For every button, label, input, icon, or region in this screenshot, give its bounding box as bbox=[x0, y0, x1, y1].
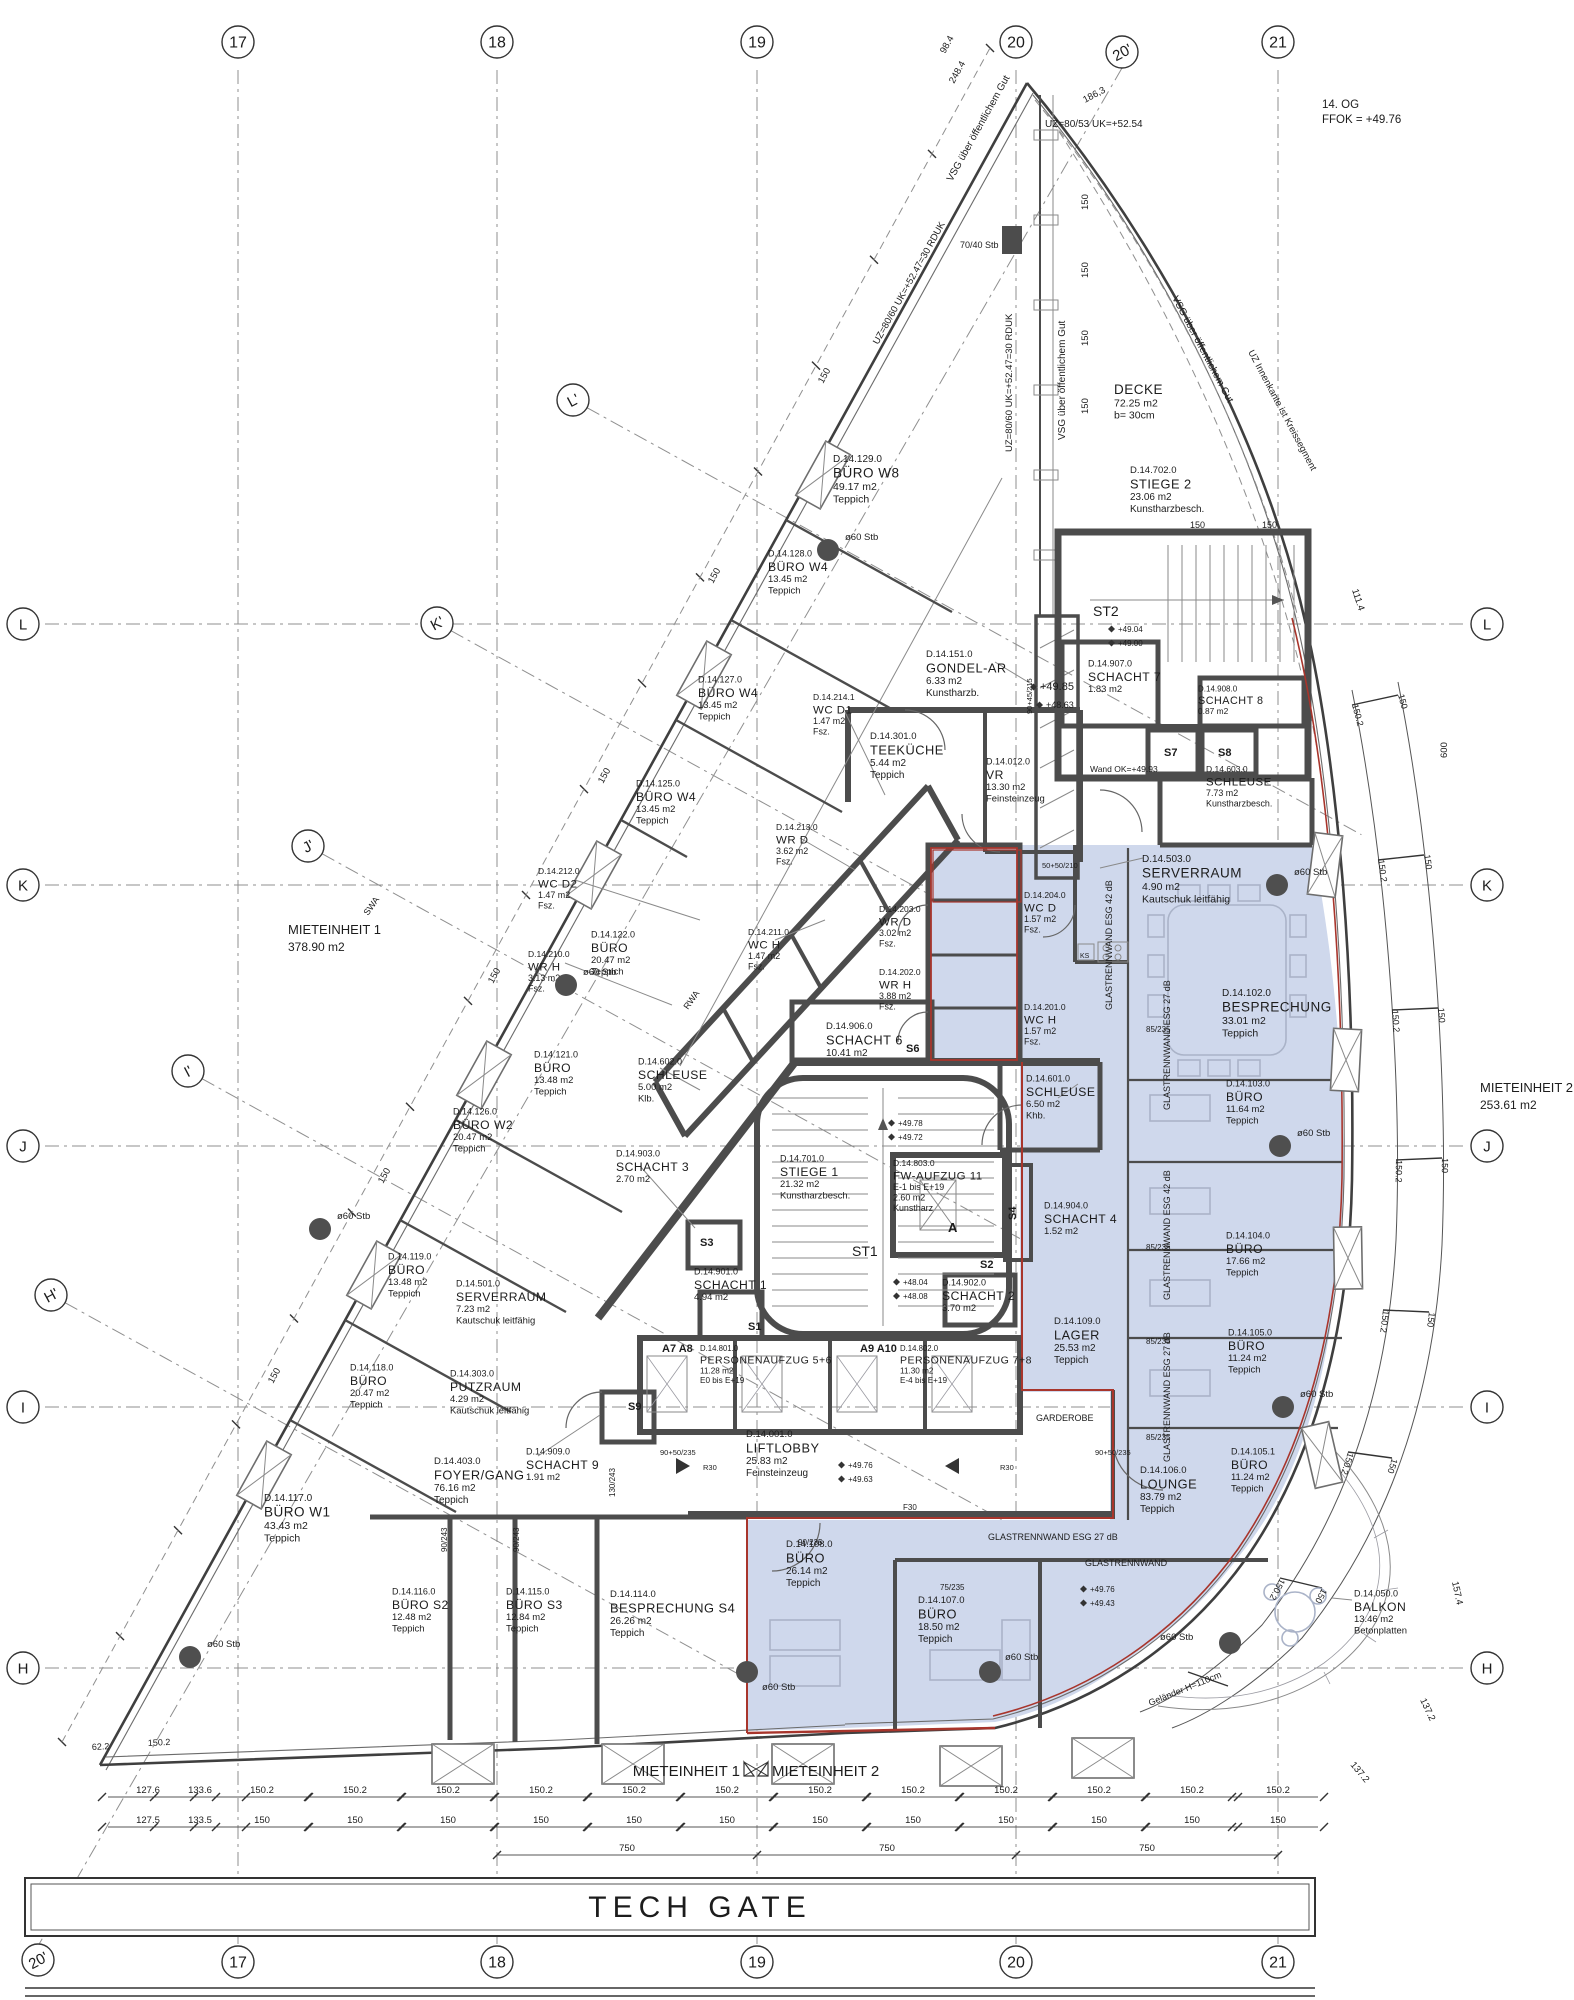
svg-text:D.14.803.0: D.14.803.0 bbox=[893, 1158, 935, 1168]
svg-text:WR H: WR H bbox=[528, 962, 561, 974]
floor-plan-drawing: 17171818191920202121LLKKJJIIHHL'K'J'I'H'… bbox=[0, 0, 1574, 2000]
room-label: D.14.129.0BÜRO W849.17 m2Teppich bbox=[833, 454, 900, 506]
svg-text:D.14.602.0: D.14.602.0 bbox=[638, 1057, 682, 1067]
dimension-value: 150 bbox=[347, 1815, 363, 1826]
annotation-text: 150 bbox=[1422, 854, 1434, 870]
svg-text:D.14.203.0: D.14.203.0 bbox=[879, 904, 921, 914]
svg-text:1.52 m2: 1.52 m2 bbox=[1044, 1226, 1078, 1237]
svg-text:BESPRECHUNG S4: BESPRECHUNG S4 bbox=[610, 1600, 735, 1615]
facade-panel-icon bbox=[1330, 1028, 1361, 1091]
svg-text:Kunstharz: Kunstharz bbox=[893, 1203, 934, 1213]
annotation-text: UZ=80/60 UK=+52.47=30 RDUK bbox=[1004, 313, 1015, 452]
svg-text:5.00 m2: 5.00 m2 bbox=[638, 1082, 672, 1093]
room-label: D.14.301.0TEEKÜCHE5.44 m2Teppich bbox=[870, 731, 944, 781]
svg-text:WC D2: WC D2 bbox=[538, 879, 577, 891]
annotation-text: 248.4 bbox=[947, 59, 968, 85]
svg-text:D.14.501.0: D.14.501.0 bbox=[456, 1279, 500, 1289]
dimension-value: 150.2 bbox=[529, 1785, 553, 1796]
grid-bubble-label: J bbox=[19, 1139, 27, 1156]
svg-text:Fsz.: Fsz. bbox=[879, 1002, 896, 1012]
column-label: ø60 Stb bbox=[845, 532, 878, 543]
elevation-value: +49.76 bbox=[848, 1461, 873, 1470]
annotation-text: VSG über öffentlichem Gut bbox=[1057, 320, 1068, 440]
annotation-text: 137.2 bbox=[1417, 1697, 1437, 1723]
svg-text:D.14.105.1: D.14.105.1 bbox=[1231, 1447, 1275, 1457]
svg-text:E0 bis E+19: E0 bis E+19 bbox=[700, 1376, 745, 1385]
facade-panel-icon bbox=[1333, 1227, 1362, 1289]
room-label: D.14.909.0SCHACHT 91.91 m2 bbox=[526, 1447, 599, 1483]
grid-bubble-label: L bbox=[1483, 617, 1491, 634]
svg-text:13.30 m2: 13.30 m2 bbox=[986, 782, 1025, 793]
dimension-value: 150 bbox=[440, 1815, 456, 1826]
svg-text:D.14.129.0: D.14.129.0 bbox=[833, 454, 882, 465]
svg-text:Kautschuk leitfähig: Kautschuk leitfähig bbox=[456, 1315, 535, 1326]
svg-text:D.14.115.0: D.14.115.0 bbox=[506, 1587, 549, 1597]
svg-text:Teppich: Teppich bbox=[1226, 1115, 1259, 1126]
svg-text:D.14.201.0: D.14.201.0 bbox=[1024, 1002, 1066, 1012]
svg-text:D.14.211.0: D.14.211.0 bbox=[748, 927, 789, 937]
annotation-text: GARDEROBE bbox=[1036, 1413, 1094, 1423]
svg-text:43.43 m2: 43.43 m2 bbox=[264, 1520, 308, 1532]
floor-elevation-label: FFOK = +49.76 bbox=[1322, 114, 1401, 126]
svg-text:Teppich: Teppich bbox=[786, 1578, 820, 1589]
annotation-text: 62.2 bbox=[92, 1741, 110, 1752]
svg-text:BÜRO W4: BÜRO W4 bbox=[698, 686, 758, 700]
svg-text:BÜRO: BÜRO bbox=[591, 941, 628, 955]
svg-text:BÜRO: BÜRO bbox=[1226, 1242, 1263, 1256]
annotation-text: KS bbox=[1080, 953, 1090, 960]
dimension-value: 127.6 bbox=[136, 1785, 160, 1796]
svg-text:D.14.908.0: D.14.908.0 bbox=[1198, 684, 1238, 693]
elevation-marker-icon bbox=[893, 1279, 900, 1286]
dimension-value: 150.2 bbox=[901, 1785, 925, 1796]
floor-plan-canvas: 17171818191920202121LLKKJJIIHHL'K'J'I'H'… bbox=[0, 0, 1574, 2000]
svg-text:D.14.601.0: D.14.601.0 bbox=[1026, 1074, 1070, 1084]
svg-text:D.14.214.1: D.14.214.1 bbox=[813, 692, 855, 702]
annotation-text: 150 bbox=[1080, 330, 1091, 346]
room-labels: D.14.129.0BÜRO W849.17 m2TeppichD.14.128… bbox=[264, 382, 1407, 1645]
column-icon bbox=[555, 974, 577, 996]
dimension-value: 150.2 bbox=[436, 1785, 460, 1796]
svg-text:2.60 m2: 2.60 m2 bbox=[893, 1193, 925, 1203]
svg-text:13.45 m2: 13.45 m2 bbox=[636, 804, 675, 815]
annotation-text: 150 bbox=[596, 766, 613, 785]
annotation-text: 98.4 bbox=[938, 34, 957, 56]
svg-text:Teppich: Teppich bbox=[1231, 1483, 1264, 1494]
svg-text:Teppich: Teppich bbox=[434, 1495, 468, 1506]
column-icon bbox=[1269, 1135, 1291, 1157]
bottom-dimension-rows: 127.6133.6150.2150.2150.2150.2150.2150.2… bbox=[98, 1785, 1328, 1859]
svg-text:3.70 m2: 3.70 m2 bbox=[942, 1303, 976, 1314]
svg-text:1.47 m2: 1.47 m2 bbox=[813, 716, 845, 726]
svg-text:D.14.702.0: D.14.702.0 bbox=[1130, 465, 1176, 476]
column-icon bbox=[1219, 1632, 1241, 1654]
svg-text:BÜRO W2: BÜRO W2 bbox=[453, 1118, 513, 1132]
grid-bubble-label: L bbox=[19, 617, 27, 634]
svg-text:11.24 m2: 11.24 m2 bbox=[1228, 1353, 1267, 1364]
dimension-value: 150 bbox=[254, 1815, 270, 1826]
column-label: ø60 Stb bbox=[1297, 1128, 1330, 1139]
annotation-text: UZ Innenkante ist Kreissegment bbox=[1245, 348, 1318, 473]
svg-text:FW-AUFZUG 11: FW-AUFZUG 11 bbox=[893, 1171, 983, 1183]
grid-bubble-label: 20 bbox=[1007, 35, 1025, 52]
svg-text:BÜRO W4: BÜRO W4 bbox=[768, 560, 828, 574]
svg-text:3.02 m2: 3.02 m2 bbox=[879, 928, 911, 938]
annotation-text: S9 bbox=[628, 1401, 641, 1413]
annotation-text: 75/235 bbox=[940, 1583, 965, 1592]
svg-text:WC D1: WC D1 bbox=[813, 705, 852, 717]
svg-text:25.53 m2: 25.53 m2 bbox=[1054, 1343, 1096, 1354]
svg-text:26.26 m2: 26.26 m2 bbox=[610, 1616, 652, 1627]
svg-text:D.14.012.0: D.14.012.0 bbox=[986, 757, 1030, 767]
svg-text:Fsz.: Fsz. bbox=[813, 727, 830, 737]
svg-text:Fsz.: Fsz. bbox=[748, 962, 765, 972]
column-label: ø60 Stb bbox=[1160, 1632, 1193, 1643]
svg-text:D.14.503.0: D.14.503.0 bbox=[1142, 854, 1191, 865]
svg-text:Teppich: Teppich bbox=[1140, 1504, 1174, 1515]
svg-text:23.06 m2: 23.06 m2 bbox=[1130, 492, 1172, 503]
svg-text:BÜRO: BÜRO bbox=[1231, 1458, 1268, 1472]
annotation-text: 150 bbox=[376, 1166, 393, 1185]
svg-text:Teppich: Teppich bbox=[534, 1086, 567, 1097]
svg-text:Kunstharzbesch.: Kunstharzbesch. bbox=[780, 1190, 850, 1201]
dimension-value: 150 bbox=[998, 1815, 1014, 1826]
room-label: D.14.116.0BÜRO S212.48 m2Teppich bbox=[392, 1587, 449, 1635]
column-label: ø60 Stb bbox=[1300, 1389, 1333, 1400]
grid-bubble-label: 19 bbox=[748, 1955, 766, 1972]
annotation-text: 130/243 bbox=[608, 1468, 617, 1497]
dimension-value: 127.5 bbox=[136, 1815, 160, 1826]
svg-text:Kunstharzbesch.: Kunstharzbesch. bbox=[1130, 504, 1204, 515]
elevation-marker-icon bbox=[838, 1476, 845, 1483]
svg-text:13.48 m2: 13.48 m2 bbox=[534, 1075, 573, 1086]
annotation-text: 111.4 bbox=[1349, 588, 1366, 613]
room-label: D.14.050.0BALKON13.46 m2Betonplatten bbox=[1354, 1589, 1407, 1637]
svg-text:49.17 m2: 49.17 m2 bbox=[833, 481, 877, 493]
svg-text:Fsz.: Fsz. bbox=[538, 901, 555, 911]
annotation-text: 150 bbox=[486, 966, 503, 985]
column-label: ø60 Stb bbox=[337, 1211, 370, 1222]
svg-text:Teppich: Teppich bbox=[264, 1533, 300, 1545]
column-label: ø60 Stb bbox=[762, 1682, 795, 1693]
svg-text:SCHLEUSE: SCHLEUSE bbox=[1026, 1085, 1095, 1099]
elevation-value: +49.72 bbox=[898, 1133, 923, 1142]
annotation-text: S4 bbox=[1007, 1206, 1019, 1220]
svg-text:5.44 m2: 5.44 m2 bbox=[870, 758, 906, 769]
svg-text:D.14.303.0: D.14.303.0 bbox=[450, 1369, 494, 1379]
column-icon bbox=[309, 1218, 331, 1240]
svg-text:Teppich: Teppich bbox=[833, 494, 869, 506]
unit2-area: 253.61 m2 bbox=[1480, 1098, 1537, 1112]
svg-text:BÜRO: BÜRO bbox=[534, 1061, 571, 1075]
annotation-text: GLASTRENNWAND ESG 27 dB bbox=[1162, 980, 1172, 1110]
svg-text:b= 30cm: b= 30cm bbox=[1114, 410, 1155, 422]
dimension-value: 150 bbox=[1270, 1815, 1286, 1826]
svg-text:Feinsteinzeug: Feinsteinzeug bbox=[746, 1468, 808, 1479]
svg-text:BÜRO: BÜRO bbox=[786, 1550, 825, 1565]
svg-text:D.14.151.0: D.14.151.0 bbox=[926, 649, 972, 660]
grid-bubble-label: 21 bbox=[1269, 1955, 1287, 1972]
svg-text:Teppich: Teppich bbox=[768, 585, 801, 596]
svg-text:Teppich: Teppich bbox=[453, 1143, 486, 1154]
dimension-value: 133.5 bbox=[188, 1815, 212, 1826]
column-icon bbox=[1266, 874, 1288, 896]
svg-text:D.14.122.0: D.14.122.0 bbox=[591, 930, 635, 940]
grid-bubble-label: 20 bbox=[1007, 1955, 1025, 1972]
svg-text:D.14.106.0: D.14.106.0 bbox=[1140, 1465, 1186, 1476]
svg-text:WR H: WR H bbox=[879, 980, 912, 992]
svg-text:D.14.212.0: D.14.212.0 bbox=[538, 866, 580, 876]
svg-text:PERSONENAUFZUG 7+8: PERSONENAUFZUG 7+8 bbox=[900, 1355, 1032, 1367]
svg-text:1.47 m2: 1.47 m2 bbox=[538, 890, 570, 900]
svg-text:11.64 m2: 11.64 m2 bbox=[1226, 1104, 1265, 1115]
svg-text:13.45 m2: 13.45 m2 bbox=[768, 574, 807, 585]
grid-bubble-label: 19 bbox=[748, 35, 766, 52]
annotation-text: SWA bbox=[361, 895, 381, 917]
svg-text:33.01 m2: 33.01 m2 bbox=[1222, 1015, 1266, 1027]
svg-text:D.14.202.0: D.14.202.0 bbox=[879, 967, 921, 977]
svg-text:Teppich: Teppich bbox=[1228, 1364, 1261, 1375]
elevation-value: +48.08 bbox=[903, 1292, 928, 1301]
svg-text:D.14.603.0: D.14.603.0 bbox=[1206, 764, 1248, 774]
svg-text:D.14.128.0: D.14.128.0 bbox=[768, 549, 812, 559]
svg-text:11.28 m2: 11.28 m2 bbox=[700, 1366, 734, 1375]
svg-text:Teppich: Teppich bbox=[918, 1634, 952, 1645]
svg-text:13.46 m2: 13.46 m2 bbox=[1354, 1614, 1393, 1625]
svg-text:SERVERRAUM: SERVERRAUM bbox=[456, 1290, 546, 1304]
svg-text:18.50 m2: 18.50 m2 bbox=[918, 1622, 960, 1633]
room-label: D.14.001.0LIFTLOBBY25.83 m2Feinsteinzeug bbox=[746, 1429, 820, 1479]
annotation-text: 150.2 bbox=[148, 1737, 171, 1748]
svg-text:Teppich: Teppich bbox=[870, 770, 904, 781]
elevation-marker-icon bbox=[893, 1293, 900, 1300]
annotation-text: 137.2 bbox=[1348, 1760, 1372, 1785]
svg-text:1.83 m2: 1.83 m2 bbox=[1088, 684, 1122, 695]
column-label: ø60 Stb bbox=[207, 1639, 240, 1650]
svg-text:DECKE: DECKE bbox=[1114, 382, 1163, 397]
grid-bubble-label: K bbox=[18, 878, 28, 895]
annotation-text: 150 bbox=[1436, 1007, 1447, 1023]
elevation-marker-icon bbox=[838, 1462, 845, 1469]
room-label: D.14.151.0GONDEL-AR6.33 m2Kunstharzb. bbox=[926, 649, 1007, 699]
svg-text:BÜRO S3: BÜRO S3 bbox=[506, 1598, 563, 1612]
annotation-text: Geländer H=110cm bbox=[1147, 1670, 1223, 1708]
svg-text:SCHACHT 4: SCHACHT 4 bbox=[1044, 1212, 1117, 1226]
svg-text:SCHLEUSE: SCHLEUSE bbox=[1206, 777, 1272, 789]
svg-text:Teppich: Teppich bbox=[388, 1288, 421, 1299]
svg-text:SCHACHT 6: SCHACHT 6 bbox=[826, 1032, 903, 1047]
dimension-value: 150.2 bbox=[715, 1785, 739, 1796]
annotation-text: F30 bbox=[903, 1503, 917, 1512]
room-label: D.14.403.0FOYER/GANG76.16 m2Teppich bbox=[434, 1456, 524, 1506]
annotation-text: 150 bbox=[1313, 1587, 1329, 1605]
grid-bubble-label: 18 bbox=[488, 35, 506, 52]
svg-text:Teppich: Teppich bbox=[1054, 1355, 1088, 1366]
svg-text:Kautschuk leitfähig: Kautschuk leitfähig bbox=[450, 1405, 529, 1416]
svg-text:Teppich: Teppich bbox=[506, 1623, 539, 1634]
elevation-value: +48.04 bbox=[903, 1278, 928, 1287]
annotation-text: A9 A10 bbox=[860, 1343, 897, 1355]
svg-text:D.14.001.0: D.14.001.0 bbox=[746, 1429, 792, 1440]
annotation-text: Wand OK=+49.93 bbox=[1090, 764, 1158, 774]
room-label: D.14.211.0WC H1.47 m2Fsz. bbox=[748, 927, 789, 972]
svg-text:20.47 m2: 20.47 m2 bbox=[591, 955, 630, 966]
svg-text:D.14.801.0: D.14.801.0 bbox=[700, 1344, 739, 1353]
divider-left-label: MIETEINHEIT 1 bbox=[633, 1763, 740, 1780]
annotation-text: S3 bbox=[700, 1237, 713, 1249]
svg-text:D.14.119.0: D.14.119.0 bbox=[388, 1252, 431, 1262]
svg-text:6.50 m2: 6.50 m2 bbox=[1026, 1099, 1060, 1110]
dimension-value: 150.2 bbox=[994, 1785, 1018, 1796]
elevation-value: +49.76 bbox=[1090, 1585, 1115, 1594]
annotation-text: S2 bbox=[980, 1259, 993, 1271]
room-label: D.14.117.0BÜRO W143.43 m2Teppich bbox=[264, 1493, 331, 1545]
annotation-text: ST2 bbox=[1093, 603, 1119, 619]
svg-text:TEEKÜCHE: TEEKÜCHE bbox=[870, 742, 944, 757]
annotation-text: 90/235 bbox=[798, 1538, 823, 1547]
room-label: D.14.202.0WR H3.88 m2Fsz. bbox=[879, 967, 921, 1012]
svg-text:Fsz.: Fsz. bbox=[879, 939, 896, 949]
room-label: D.14.121.0BÜRO13.48 m2Teppich bbox=[534, 1050, 578, 1098]
annotation-text: 150 bbox=[1396, 693, 1410, 710]
svg-text:D.14.909.0: D.14.909.0 bbox=[526, 1447, 570, 1457]
elevation-marker-icon bbox=[1108, 626, 1115, 633]
annotation-text: GLASTRENNWAND ESG 27 dB bbox=[1162, 1332, 1172, 1462]
dimension-value: 750 bbox=[1139, 1843, 1155, 1854]
svg-text:D.14.127.0: D.14.127.0 bbox=[698, 675, 742, 685]
room-label: D.14.701.0STIEGE 121.32 m2Kunstharzbesch… bbox=[780, 1154, 850, 1202]
column-icon bbox=[736, 1661, 758, 1683]
column-icon bbox=[979, 1661, 1001, 1683]
svg-text:D.14.104.0: D.14.104.0 bbox=[1226, 1231, 1270, 1241]
annotation-text: ST1 bbox=[852, 1243, 878, 1259]
svg-text:D.14.121.0: D.14.121.0 bbox=[534, 1050, 578, 1060]
svg-text:20.47 m2: 20.47 m2 bbox=[453, 1132, 492, 1143]
annotation-text: UZ=80/53 UK=+52.54 bbox=[1045, 119, 1143, 130]
room-label: D.14.908.0SCHACHT 80.87 m2 bbox=[1198, 684, 1264, 716]
annotation-text: UZ=80/60 UK=+52.47=30 RDUK bbox=[871, 220, 948, 347]
dimension-value: 150.2 bbox=[1266, 1785, 1290, 1796]
annotation-text: A bbox=[948, 1220, 958, 1235]
svg-text:3.13 m2: 3.13 m2 bbox=[528, 973, 560, 983]
room-label: DECKE72.25 m2b= 30cm bbox=[1114, 382, 1163, 422]
svg-text:21.32 m2: 21.32 m2 bbox=[780, 1179, 819, 1190]
elevation-value: +49.43 bbox=[1090, 1599, 1115, 1608]
svg-text:D.14.907.0: D.14.907.0 bbox=[1088, 659, 1132, 669]
annotation-text: 150.2 bbox=[1394, 1160, 1404, 1183]
svg-text:D.14.109.0: D.14.109.0 bbox=[1054, 1316, 1100, 1327]
svg-text:BALKON: BALKON bbox=[1354, 1600, 1406, 1614]
dimension-value: 150 bbox=[719, 1815, 735, 1826]
svg-text:SCHLEUSE: SCHLEUSE bbox=[638, 1068, 707, 1082]
svg-text:Betonplatten: Betonplatten bbox=[1354, 1625, 1407, 1636]
annotation-text: R30 bbox=[703, 1463, 717, 1472]
facade-panel-icon bbox=[457, 1041, 512, 1109]
annotation-text: 150 bbox=[1080, 194, 1091, 210]
svg-text:LIFTLOBBY: LIFTLOBBY bbox=[746, 1440, 820, 1455]
svg-text:PERSONENAUFZUG 5+6: PERSONENAUFZUG 5+6 bbox=[700, 1355, 832, 1367]
room-label: D.14.603.0SCHLEUSE7.73 m2Kunstharzbesch. bbox=[1206, 764, 1272, 809]
svg-text:13.45 m2: 13.45 m2 bbox=[698, 700, 737, 711]
annotation-text: 150 bbox=[706, 566, 723, 585]
svg-text:11.24 m2: 11.24 m2 bbox=[1231, 1472, 1270, 1483]
dimension-value: 750 bbox=[879, 1843, 895, 1854]
svg-text:VR: VR bbox=[986, 768, 1004, 782]
svg-text:2.70 m2: 2.70 m2 bbox=[616, 1174, 650, 1185]
svg-text:D.14.902.0: D.14.902.0 bbox=[942, 1278, 986, 1288]
svg-text:7.23 m2: 7.23 m2 bbox=[456, 1304, 490, 1315]
svg-text:SCHACHT 1: SCHACHT 1 bbox=[694, 1278, 767, 1292]
svg-text:12.48 m2: 12.48 m2 bbox=[392, 1612, 431, 1623]
svg-text:E-4 bis E+19: E-4 bis E+19 bbox=[900, 1376, 947, 1385]
svg-text:4.94 m2: 4.94 m2 bbox=[694, 1292, 728, 1303]
room-label: D.14.118.0BÜRO20.47 m2Teppich bbox=[350, 1363, 393, 1411]
room-label: D.14.127.0BÜRO W413.45 m2Teppich bbox=[698, 675, 758, 723]
grid-bubble-label: 17 bbox=[229, 35, 247, 52]
annotation-text: 186,3 bbox=[1081, 85, 1107, 106]
svg-text:D.14.105.0: D.14.105.0 bbox=[1228, 1328, 1272, 1338]
annotation-text: 150 bbox=[1440, 1158, 1450, 1173]
annotation-text: RWA bbox=[681, 989, 701, 1012]
elevation-marker-icon bbox=[888, 1134, 895, 1141]
svg-text:6.33 m2: 6.33 m2 bbox=[926, 676, 962, 687]
grid-bubble-label: 17 bbox=[229, 1955, 247, 1972]
divider-right-label: MIETEINHEIT 2 bbox=[772, 1763, 879, 1780]
svg-text:7.73 m2: 7.73 m2 bbox=[1206, 788, 1238, 798]
svg-text:D.14.117.0: D.14.117.0 bbox=[264, 1493, 313, 1504]
svg-text:Teppich: Teppich bbox=[610, 1628, 644, 1639]
grid-bubble-label: J bbox=[1483, 1139, 1491, 1156]
svg-text:Kunstharzb.: Kunstharzb. bbox=[926, 688, 979, 699]
unit1-area: 378.90 m2 bbox=[288, 940, 345, 954]
grid-bubble-label: K bbox=[1482, 878, 1492, 895]
svg-text:D.14.125.0: D.14.125.0 bbox=[636, 779, 680, 789]
svg-text:Teppich: Teppich bbox=[350, 1399, 383, 1410]
svg-text:3.88 m2: 3.88 m2 bbox=[879, 991, 911, 1001]
annotation-text: GLASTRENNWAND ESG 27 dB bbox=[988, 1532, 1118, 1542]
svg-text:D.14.114.0: D.14.114.0 bbox=[610, 1589, 656, 1600]
svg-text:Teppich: Teppich bbox=[636, 815, 669, 826]
column-label: ø60 Stb bbox=[583, 967, 616, 978]
elevation-value: +49.00 bbox=[1118, 639, 1143, 648]
svg-text:72.25 m2: 72.25 m2 bbox=[1114, 397, 1158, 409]
dimension-value: 150.2 bbox=[622, 1785, 646, 1796]
drawing-header: 14. OG FFOK = +49.76 bbox=[1322, 99, 1401, 126]
svg-text:20.47 m2: 20.47 m2 bbox=[350, 1388, 389, 1399]
svg-text:WR D: WR D bbox=[879, 917, 912, 929]
svg-text:4.29 m2: 4.29 m2 bbox=[450, 1394, 484, 1405]
grid-bubble-label: H bbox=[1482, 1661, 1493, 1678]
grid-bubble-label: I bbox=[21, 1400, 25, 1417]
room-label: D.14.702.0STIEGE 223.06 m2Kunstharzbesch… bbox=[1130, 465, 1204, 515]
annotation-text: 150 bbox=[1385, 1457, 1399, 1474]
annotation-text: 90+45/215 bbox=[1025, 678, 1034, 714]
title-block: TECH GATE bbox=[25, 1878, 1315, 1996]
annotation-text: 70/40 Stb bbox=[960, 240, 999, 250]
grid-bubble-label: H bbox=[18, 1661, 29, 1678]
room-label: D.14.119.0BÜRO13.48 m2Teppich bbox=[388, 1252, 431, 1300]
column-icon bbox=[1272, 1396, 1294, 1418]
annotation-text: 90/243 bbox=[512, 1527, 521, 1552]
svg-text:D.14.701.0: D.14.701.0 bbox=[780, 1154, 824, 1164]
project-title: TECH GATE bbox=[588, 1891, 811, 1924]
annotation-text: 150.2 bbox=[1350, 703, 1365, 727]
annotation-text: R30 bbox=[1000, 1463, 1014, 1472]
svg-text:PUTZRAUM: PUTZRAUM bbox=[450, 1380, 521, 1394]
column-icon bbox=[179, 1646, 201, 1668]
svg-text:Fsz.: Fsz. bbox=[776, 857, 793, 867]
annotation-text: 150 bbox=[266, 1366, 283, 1385]
